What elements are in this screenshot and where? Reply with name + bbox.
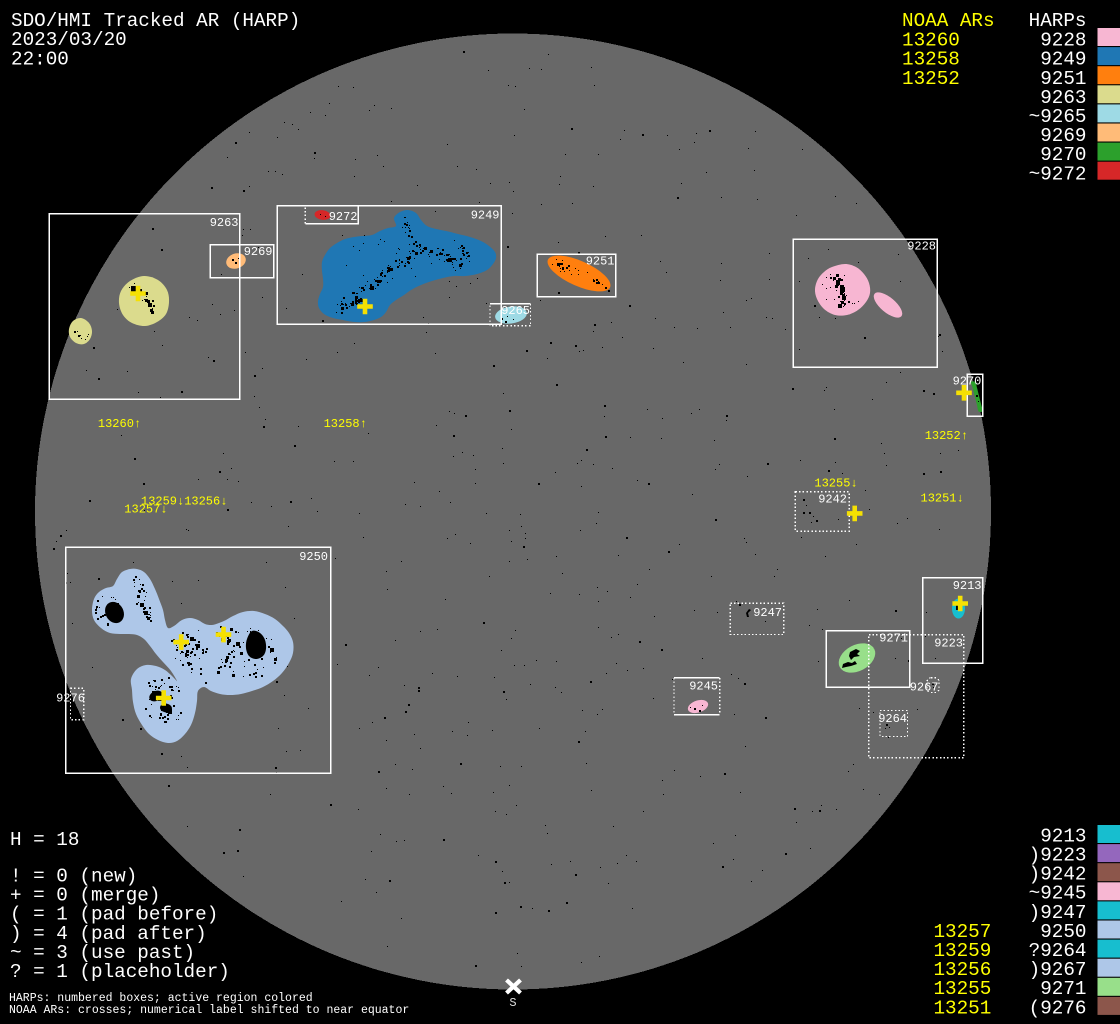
svg-text:9245: 9245 [689,679,718,693]
svg-text:9265: 9265 [501,304,530,318]
svg-text:13255↓: 13255↓ [814,477,857,491]
svg-text:(9276: (9276 [1029,997,1087,1019]
svg-text:9228: 9228 [907,239,936,253]
svg-text:9263: 9263 [210,216,239,230]
svg-text:13258↑: 13258↑ [324,417,367,431]
svg-text:9276: 9276 [56,692,85,706]
svg-text:9247: 9247 [753,606,782,620]
svg-text:13259↓13256↓: 13259↓13256↓ [141,495,227,509]
svg-text:13251: 13251 [933,997,991,1019]
svg-text:9250: 9250 [299,550,328,564]
svg-text:9270: 9270 [953,375,982,389]
svg-text:? = 1 (placeholder): ? = 1 (placeholder) [10,961,230,983]
svg-text:9264: 9264 [878,712,907,726]
svg-text:9269: 9269 [244,245,273,259]
svg-text:9223: 9223 [934,637,963,651]
svg-text:13251↓: 13251↓ [921,491,964,505]
svg-text:22:00: 22:00 [11,48,69,70]
svg-text:9271: 9271 [879,631,908,645]
svg-text:S: S [509,996,516,1010]
svg-text:9242: 9242 [818,492,847,506]
svg-text:13252↑: 13252↑ [925,429,968,443]
svg-text:13260↑: 13260↑ [98,417,141,431]
svg-text:NOAA ARs: crosses; numerical l: NOAA ARs: crosses; numerical label shift… [9,1004,409,1017]
svg-text:13252: 13252 [902,68,960,90]
svg-text:~9272: ~9272 [1029,163,1087,185]
svg-text:9249: 9249 [471,209,500,223]
svg-text:9272: 9272 [329,210,358,224]
svg-text:9251: 9251 [586,255,615,269]
svg-text:9267: 9267 [910,681,939,695]
svg-text:H = 18: H = 18 [10,829,79,851]
svg-text:9213: 9213 [953,579,982,593]
